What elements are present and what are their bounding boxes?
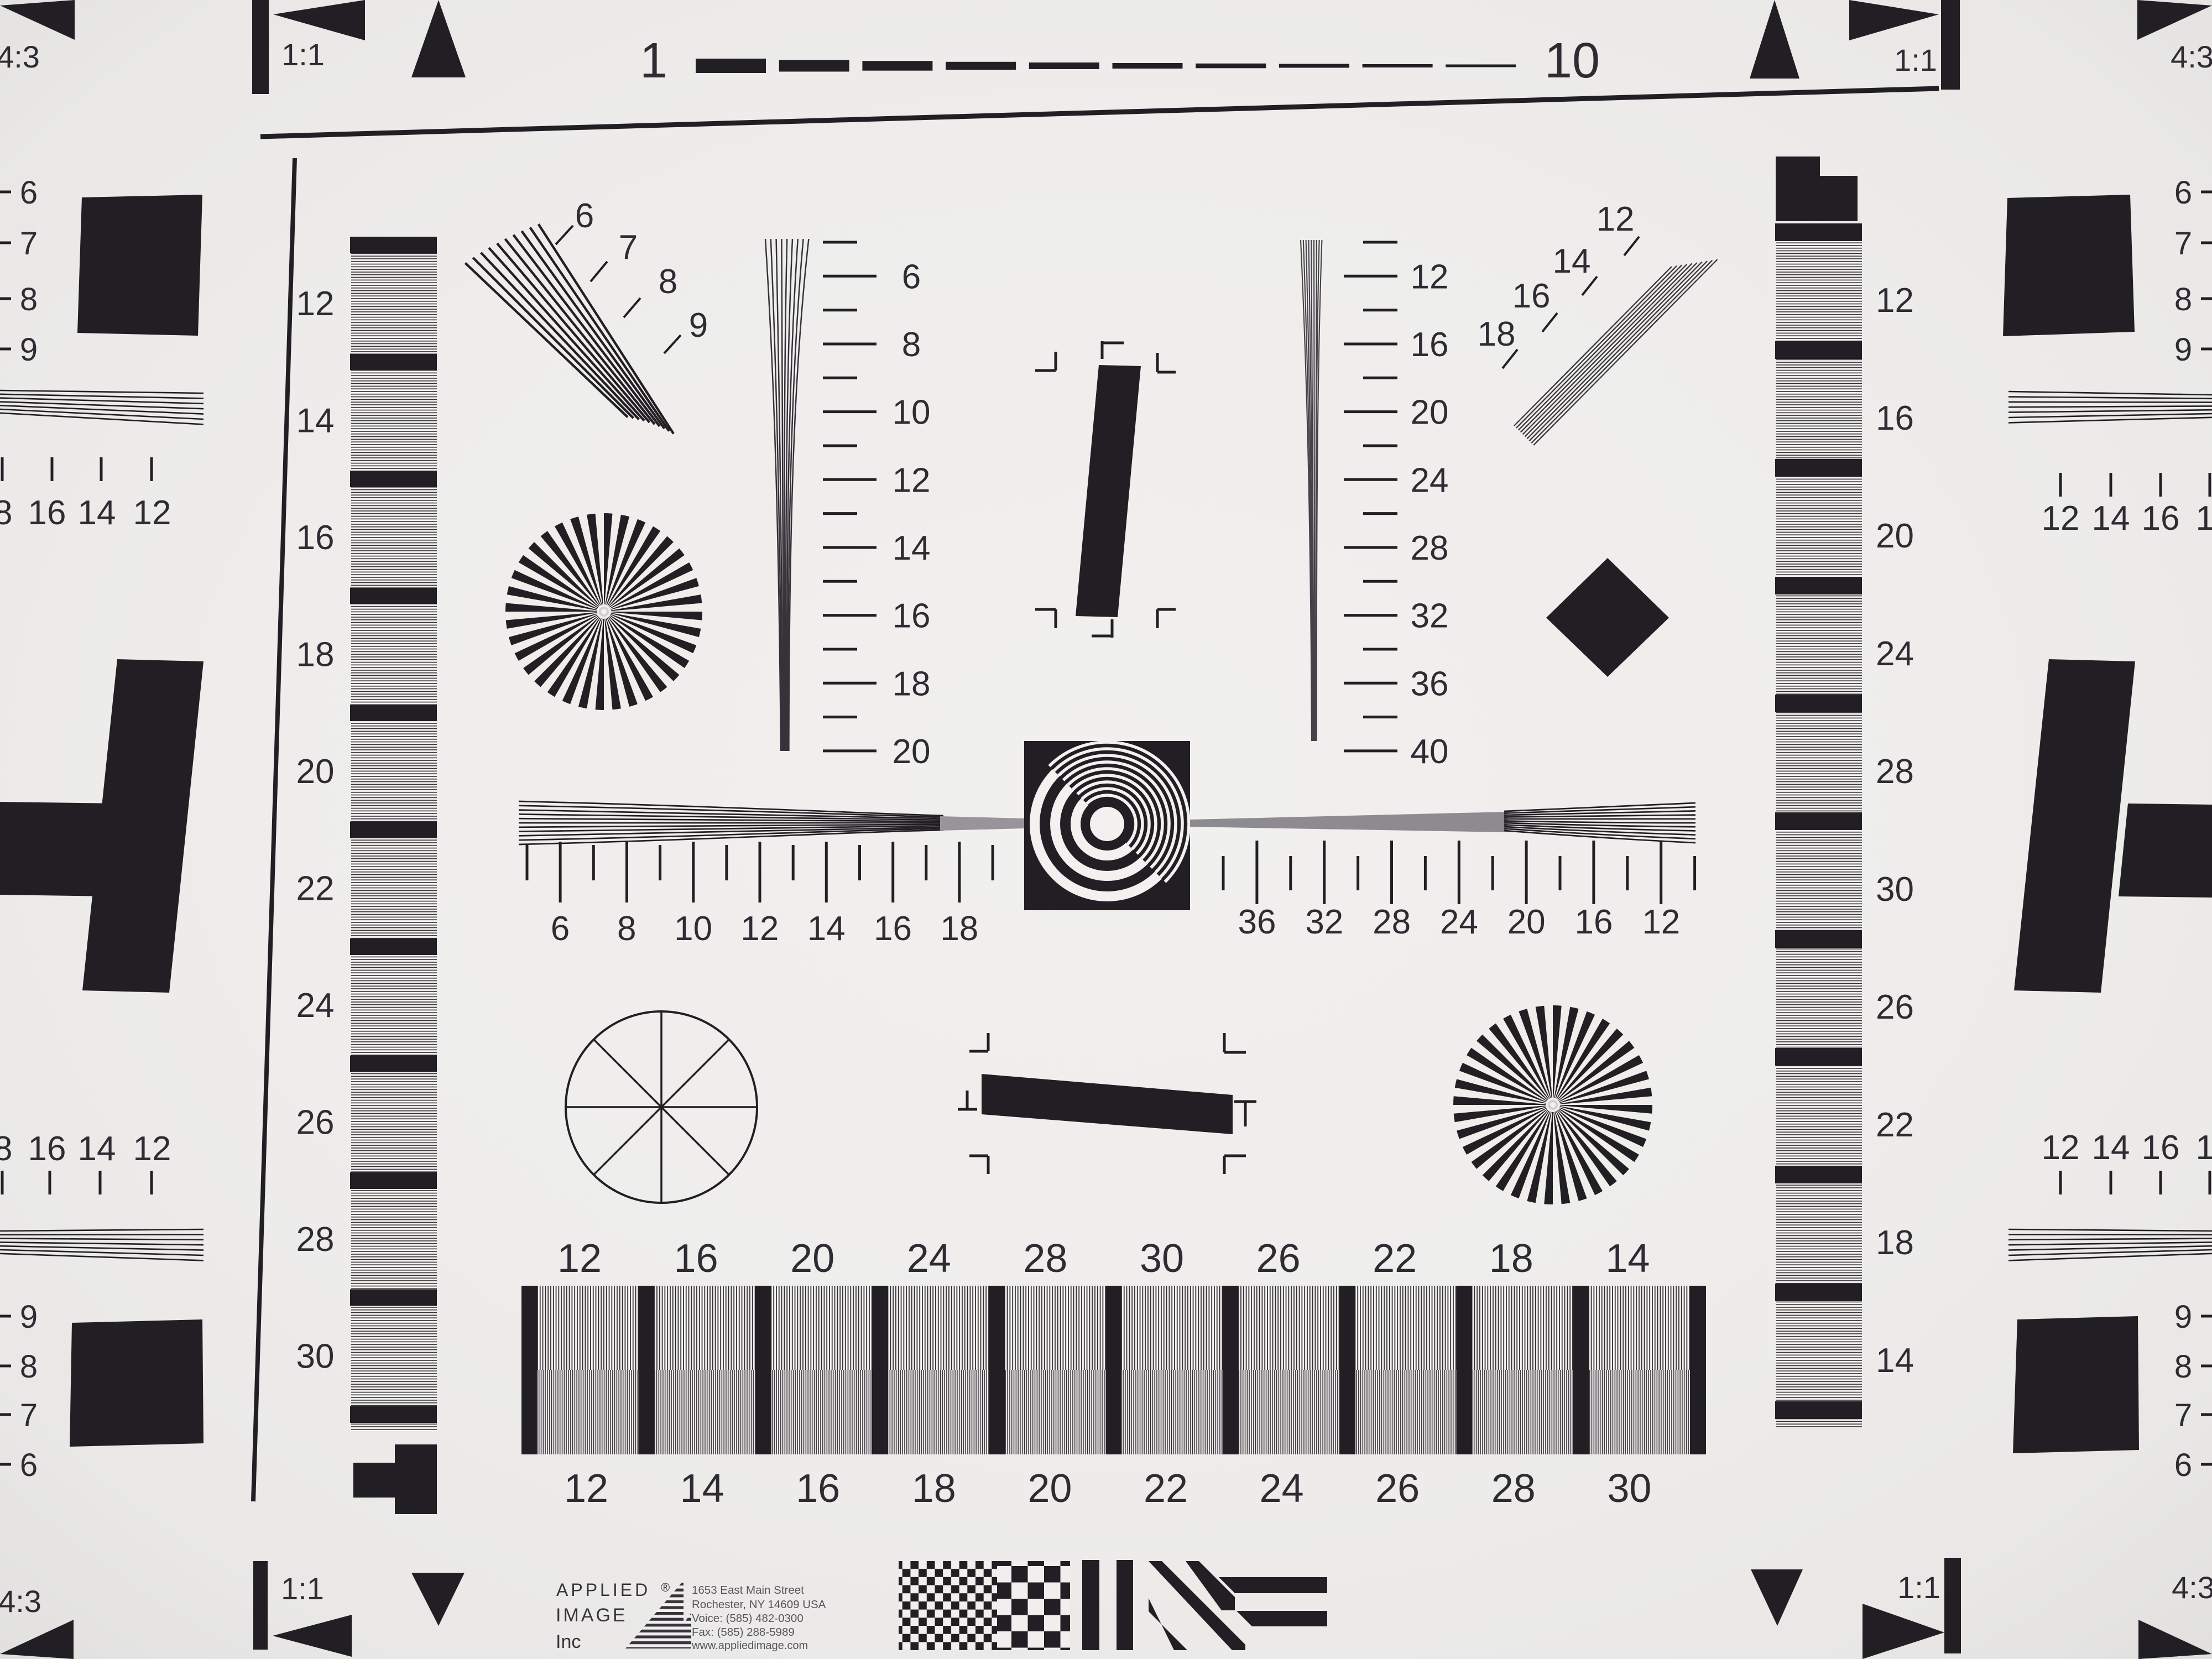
svg-text:16: 16 [2142,1129,2180,1167]
svg-text:8: 8 [617,910,636,948]
svg-text:20: 20 [1507,903,1546,941]
svg-text:18: 18 [893,665,931,703]
svg-text:Rochester, NY 14609 USA: Rochester, NY 14609 USA [692,1598,826,1611]
svg-text:6: 6 [575,197,594,235]
svg-text:14: 14 [1605,1237,1650,1281]
svg-text:12: 12 [296,285,335,323]
svg-text:32: 32 [1305,903,1343,941]
svg-text:1: 1 [640,33,667,88]
svg-text:16: 16 [1411,326,1449,364]
svg-text:6: 6 [2174,1447,2192,1483]
svg-text:18: 18 [1489,1237,1533,1281]
svg-text:12: 12 [557,1237,602,1281]
svg-text:4:3: 4:3 [2171,39,2212,74]
svg-text:8: 8 [659,263,677,301]
svg-text:28: 28 [1491,1467,1536,1511]
svg-text:4:3: 4:3 [2172,1570,2212,1605]
svg-text:8: 8 [902,326,921,364]
svg-text:16: 16 [1512,277,1551,315]
svg-text:1:1: 1:1 [1894,43,1937,77]
svg-text:9: 9 [689,306,708,345]
svg-text:22: 22 [1144,1467,1188,1511]
svg-text:36: 36 [1238,903,1276,941]
svg-text:16: 16 [28,1130,66,1168]
svg-text:16: 16 [28,494,66,532]
svg-text:7: 7 [2174,226,2192,262]
svg-text:www.appliedimage.com: www.appliedimage.com [691,1640,808,1652]
svg-text:1:1: 1:1 [281,37,325,72]
svg-text:14: 14 [893,529,931,567]
svg-text:36: 36 [1411,665,1449,703]
svg-text:16: 16 [1876,399,1914,437]
svg-text:30: 30 [1140,1237,1184,1281]
svg-text:12: 12 [564,1467,608,1511]
svg-text:10: 10 [893,394,931,432]
svg-text:20: 20 [893,733,931,771]
svg-text:24: 24 [1260,1467,1304,1511]
svg-text:6: 6 [2174,175,2192,211]
svg-text:12: 12 [1642,903,1680,941]
svg-text:14: 14 [78,1130,116,1168]
svg-text:26: 26 [1876,988,1914,1026]
svg-text:IMAGE: IMAGE [556,1605,628,1626]
svg-text:16: 16 [1575,903,1613,941]
svg-text:30: 30 [1607,1467,1651,1511]
svg-text:18: 18 [2196,499,2212,538]
svg-text:12: 12 [2042,1129,2080,1167]
svg-text:14: 14 [807,910,846,948]
svg-text:14: 14 [680,1467,724,1511]
svg-text:12: 12 [1411,258,1449,296]
svg-text:22: 22 [1876,1106,1914,1144]
svg-text:22: 22 [1373,1237,1417,1281]
svg-text:1653 East Main Street: 1653 East Main Street [692,1584,804,1597]
svg-text:18: 18 [912,1467,956,1511]
svg-text:8: 8 [2174,281,2192,317]
svg-text:9: 9 [20,1299,38,1335]
svg-text:18: 18 [0,494,12,532]
svg-text:16: 16 [296,519,335,557]
svg-text:28: 28 [1023,1237,1067,1281]
svg-text:1:1: 1:1 [1897,1570,1940,1605]
svg-text:24: 24 [907,1237,951,1281]
svg-text:18: 18 [2196,1129,2212,1167]
svg-text:14: 14 [1553,242,1591,280]
svg-text:6: 6 [902,258,921,296]
svg-text:4:3: 4:3 [0,39,40,74]
svg-text:9: 9 [20,332,38,368]
svg-text:APPLIED: APPLIED [556,1580,650,1600]
svg-text:18: 18 [296,636,335,674]
svg-text:®: ® [661,1580,670,1594]
svg-text:6: 6 [551,910,570,948]
svg-text:12: 12 [893,461,931,499]
svg-text:26: 26 [296,1104,335,1142]
svg-text:14: 14 [2092,1129,2130,1167]
svg-text:18: 18 [0,1130,12,1168]
svg-text:30: 30 [296,1338,335,1376]
svg-text:7: 7 [20,226,38,262]
svg-text:28: 28 [1373,903,1411,941]
svg-text:26: 26 [1256,1237,1301,1281]
svg-text:24: 24 [1876,635,1914,673]
svg-text:14: 14 [1876,1342,1914,1380]
svg-text:14: 14 [2092,499,2130,538]
svg-text:9: 9 [2174,332,2192,368]
svg-text:28: 28 [1411,529,1449,567]
svg-text:8: 8 [20,281,38,317]
svg-text:Voice: (585) 482-0300: Voice: (585) 482-0300 [692,1612,804,1625]
svg-text:14: 14 [296,402,335,440]
svg-text:30: 30 [1876,870,1914,909]
svg-text:20: 20 [1411,394,1449,432]
svg-text:12: 12 [740,910,779,948]
svg-text:14: 14 [78,494,116,532]
svg-text:7: 7 [619,228,638,267]
svg-text:16: 16 [674,1237,718,1281]
svg-text:16: 16 [874,910,912,948]
svg-text:Inc: Inc [556,1631,581,1652]
svg-text:7: 7 [2174,1397,2192,1433]
svg-text:28: 28 [1876,753,1914,791]
svg-text:28: 28 [296,1220,335,1259]
svg-text:12: 12 [133,494,171,532]
svg-text:26: 26 [1375,1467,1420,1511]
svg-text:8: 8 [2174,1349,2192,1385]
svg-text:9: 9 [2174,1299,2192,1335]
svg-text:16: 16 [2142,499,2180,538]
svg-text:16: 16 [796,1467,840,1511]
svg-text:12: 12 [2042,499,2080,538]
svg-text:24: 24 [296,987,335,1025]
svg-text:18: 18 [940,910,978,948]
svg-text:6: 6 [20,175,38,211]
svg-text:Fax: (585) 288-5989: Fax: (585) 288-5989 [692,1626,795,1639]
svg-text:10: 10 [674,910,712,948]
svg-text:20: 20 [1027,1467,1072,1511]
svg-text:32: 32 [1411,597,1449,635]
svg-text:22: 22 [296,870,335,908]
svg-text:20: 20 [1876,517,1914,555]
svg-text:1:1: 1:1 [281,1571,324,1606]
svg-text:18: 18 [1876,1224,1914,1262]
svg-text:6: 6 [20,1447,38,1483]
svg-text:12: 12 [1597,200,1635,238]
svg-text:7: 7 [20,1397,38,1433]
svg-text:8: 8 [20,1349,38,1385]
svg-text:40: 40 [1411,733,1449,771]
svg-text:12: 12 [133,1130,171,1168]
svg-text:24: 24 [1411,461,1449,499]
svg-text:16: 16 [893,597,931,635]
svg-text:12: 12 [1876,281,1914,320]
svg-text:4:3: 4:3 [0,1584,41,1619]
svg-text:20: 20 [790,1237,834,1281]
svg-text:18: 18 [1478,315,1516,353]
svg-text:20: 20 [296,753,335,791]
svg-text:24: 24 [1440,903,1478,941]
svg-text:10: 10 [1545,33,1600,88]
